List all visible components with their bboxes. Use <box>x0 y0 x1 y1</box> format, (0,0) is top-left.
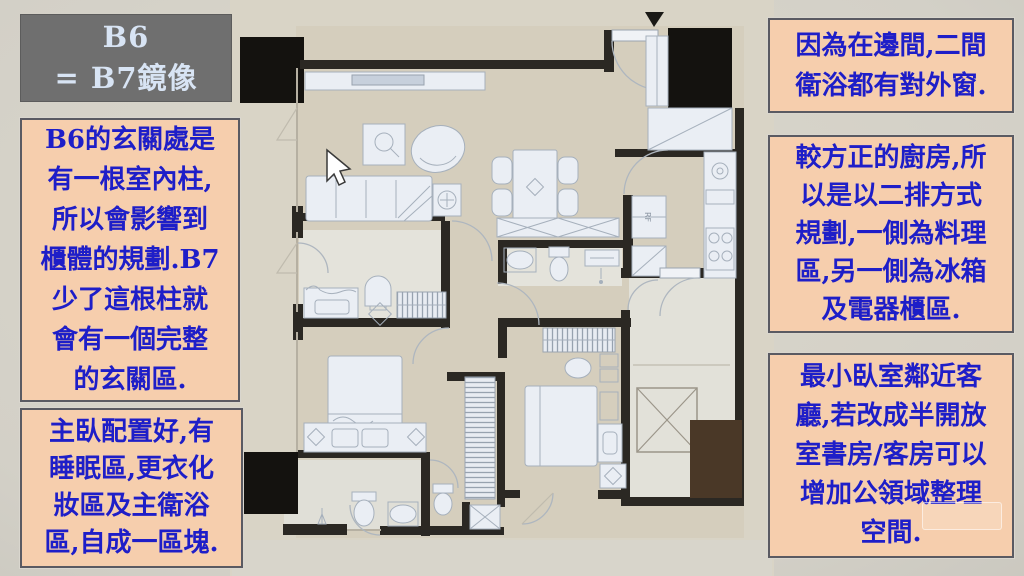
toilet <box>354 500 374 526</box>
column-top-left <box>240 37 304 103</box>
nightstand <box>598 424 622 462</box>
title-box: B6 = B7鏡像 <box>20 14 232 102</box>
toilet <box>365 276 391 306</box>
note-bath-windows: 因為在邊間,二間 衛浴都有對外窗. <box>768 18 1014 113</box>
column-bottom-left <box>240 452 298 514</box>
pedestal-sink <box>390 505 416 523</box>
dining-chair <box>558 189 578 216</box>
bed <box>525 386 597 466</box>
photo-shadow <box>690 420 742 498</box>
sideboard <box>497 218 619 237</box>
shaft-hatched <box>465 377 495 499</box>
tv <box>352 75 424 85</box>
note-master-suite: 主臥配置好,有 睡眠區,更衣化 妝區及主衛浴 區,自成一區塊. <box>20 408 243 568</box>
slide: RF <box>0 0 1024 576</box>
bathroom-sink <box>507 251 533 269</box>
dining-chair <box>558 157 578 184</box>
watermark <box>922 502 1002 530</box>
toilet-tank <box>549 247 569 257</box>
dining-chair <box>492 157 512 184</box>
toilet <box>434 493 452 515</box>
note-kitchen-two-rows: 較方正的廚房,所 以是以二排方式 規劃,一側為料理 區,另一側為冰箱 及電器櫃區… <box>768 135 1014 333</box>
duct-shaft <box>465 377 500 529</box>
toilet <box>550 257 568 281</box>
note-entry-column: B6的玄關處是 有一根室內柱, 所以會影響到 櫃體的規劃.B7 少了這根柱就 會… <box>20 118 240 402</box>
dining-chair <box>492 189 512 216</box>
dining-table <box>513 150 557 224</box>
sofa <box>306 176 432 221</box>
side-table <box>363 124 405 165</box>
bathroom-door <box>660 268 700 278</box>
fridge-label: RF <box>643 212 652 223</box>
seat-cushion <box>565 358 591 378</box>
column-top-right <box>668 28 732 112</box>
